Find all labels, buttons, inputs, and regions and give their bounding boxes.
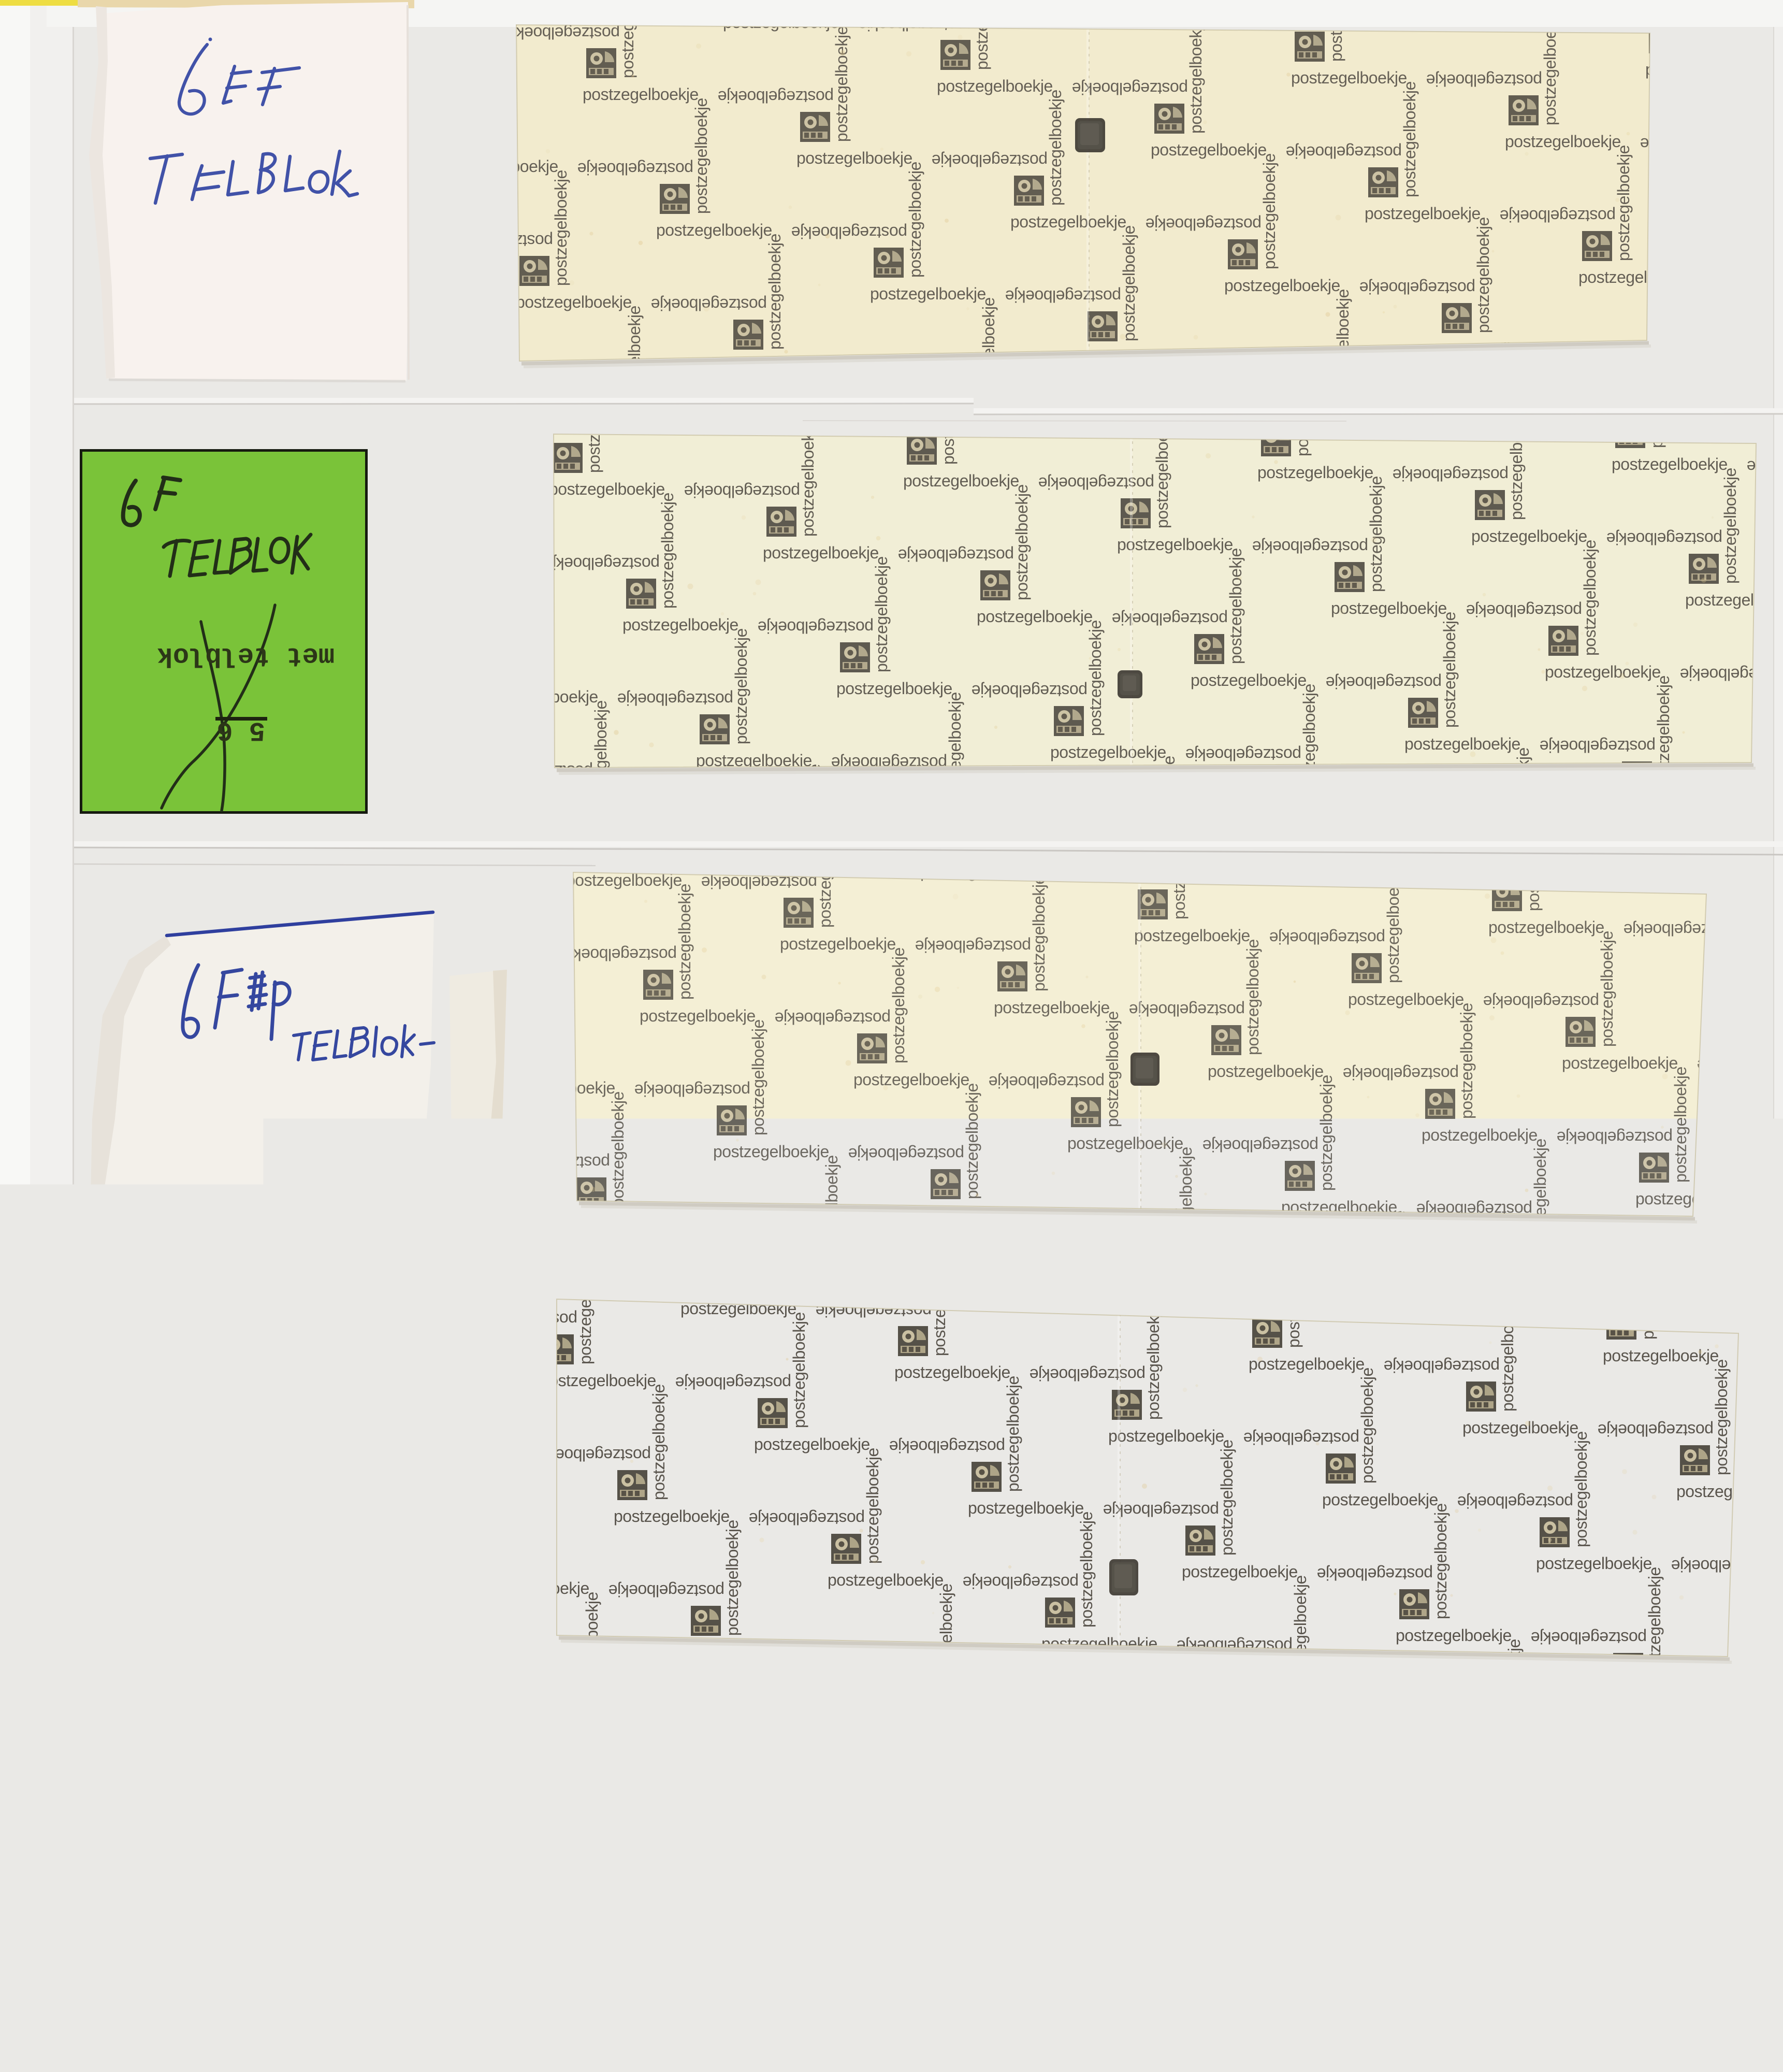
svg-text:met telblok: met telblok [157,640,335,671]
svg-text:5 6: 5 6 [216,715,265,745]
svg-text:6fFq: 6fFq [189,1421,260,1455]
svg-text:met telblok: met telblok [114,1482,312,1516]
